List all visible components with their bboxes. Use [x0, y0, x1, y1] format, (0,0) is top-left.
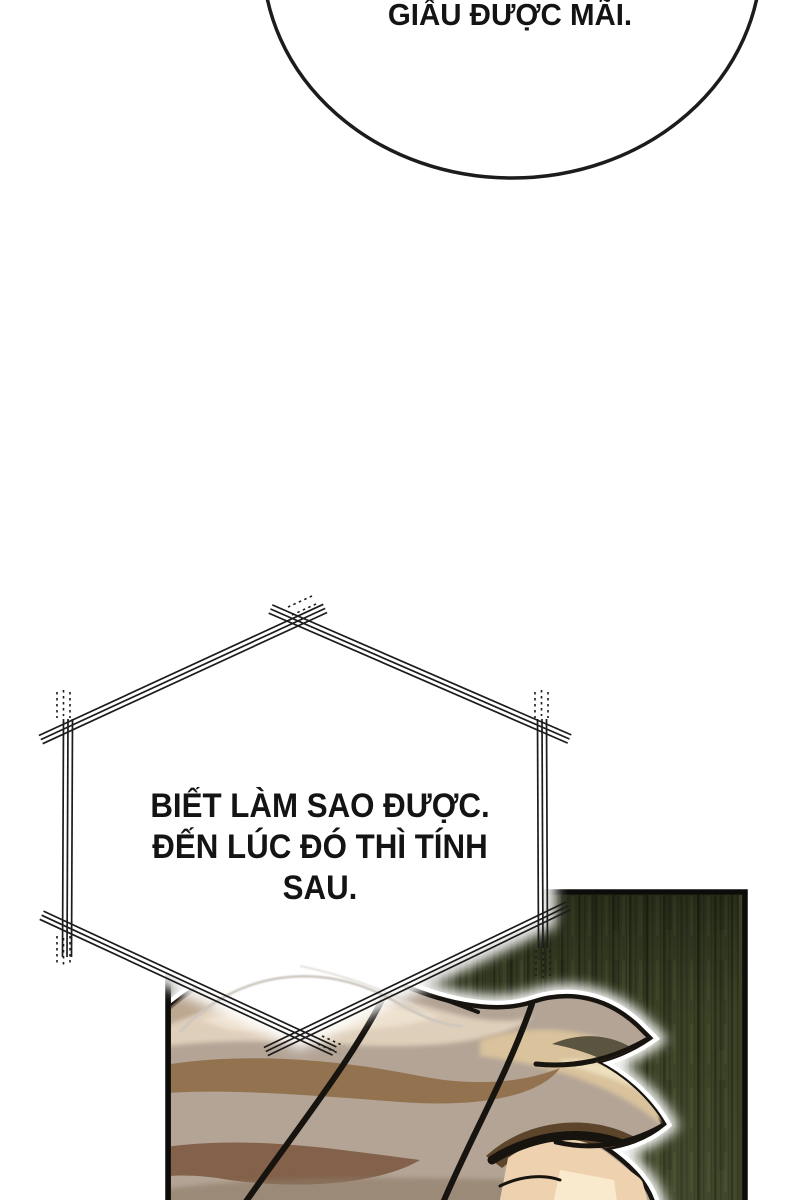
- speech-text-hex-line3: SAU.: [90, 868, 550, 909]
- speech-text-hex-line1: BIẾT LÀM SAO ĐƯỢC.: [90, 786, 550, 827]
- speech-text-top: GIẤU ĐƯỢC MÃI.: [130, 0, 800, 33]
- comic-page: GIẤU ĐƯỢC MÃI. BIẾT LÀM SAO ĐƯỢC. ĐẾN LÚ…: [0, 0, 800, 1200]
- speech-text-hex-line2: ĐẾN LÚC ĐÓ THÌ TÍNH: [90, 827, 550, 868]
- speech-text-hex: BIẾT LÀM SAO ĐƯỢC. ĐẾN LÚC ĐÓ THÌ TÍNH S…: [90, 786, 550, 909]
- comic-artwork: [0, 0, 800, 1200]
